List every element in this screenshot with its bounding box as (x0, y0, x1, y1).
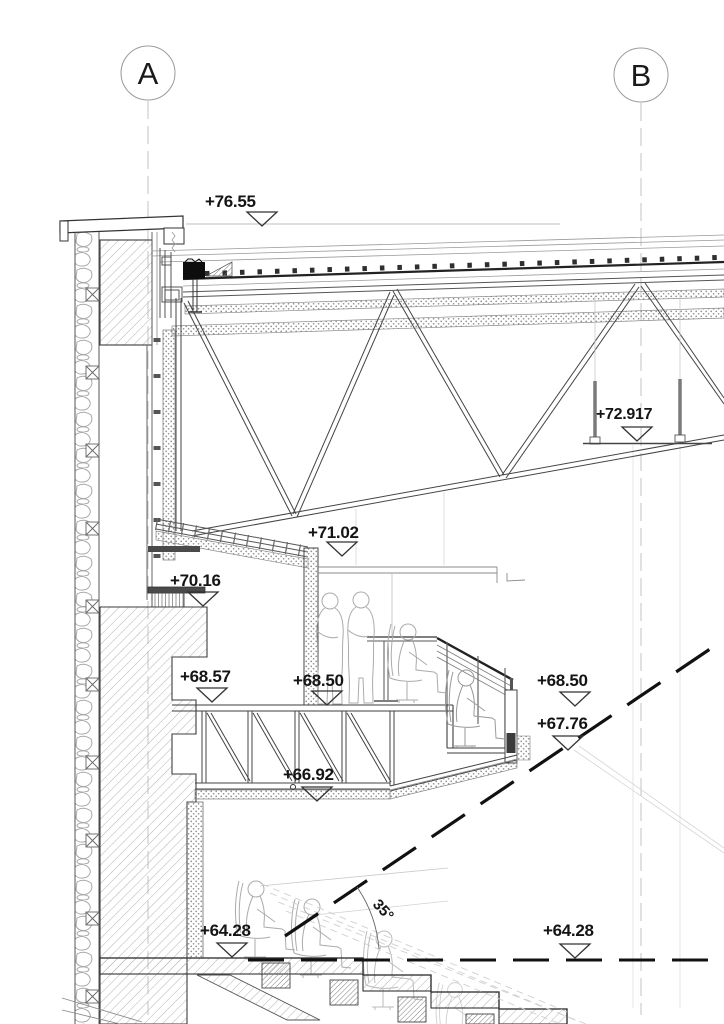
floor-truss (195, 711, 517, 799)
roof-edge-left (160, 248, 182, 318)
suite-railing (437, 638, 513, 752)
slab-soffit (197, 975, 320, 1020)
wall-ledge (148, 587, 205, 607)
grid-label-b: B (631, 58, 652, 93)
level-marker-6428-right: +64.28 (543, 921, 594, 958)
level-marker-6850-right: +68.50 (537, 671, 590, 706)
level-value: +64.28 (200, 921, 251, 940)
level-triangle-icon (197, 688, 227, 702)
level-value: +67.76 (537, 714, 588, 733)
level-triangle-icon (327, 542, 357, 556)
suite-spectator (445, 670, 505, 749)
grid-bubble-b: B (614, 48, 668, 102)
bar-seated-person (387, 624, 447, 703)
level-triangle-icon (560, 944, 590, 958)
parapet-concrete (100, 240, 152, 345)
level-value: +76.55 (205, 192, 256, 211)
level-value: +66.92 (283, 765, 334, 784)
section-drawing: A B (0, 0, 724, 1024)
truss-bottom-chord (192, 435, 724, 536)
grid-label-a: A (138, 56, 159, 91)
level-value: +72.917 (596, 406, 653, 423)
suite-people (317, 592, 505, 749)
grid-bubble-a: A (121, 46, 175, 100)
floor-truss-insulation (195, 790, 390, 799)
level-value: +68.57 (180, 667, 231, 686)
drawing-canvas: A B (0, 0, 724, 1024)
level-marker-6857: +68.57 (180, 667, 231, 702)
level-value: +71.02 (308, 523, 359, 542)
level-value: +68.50 (537, 671, 588, 690)
suite-front-beam (505, 690, 530, 763)
level-marker-6776: +67.76 (537, 714, 588, 750)
level-value: +68.50 (293, 671, 344, 690)
level-value: +70.16 (170, 571, 221, 590)
level-marker-7655: +76.55 (205, 192, 277, 226)
level-marker-6428-left: +64.28 (200, 921, 251, 957)
level-triangle-icon (560, 692, 590, 706)
level-triangle-icon (622, 427, 652, 441)
roof-assembly (152, 235, 724, 336)
level-marker-72917: +72.917 (596, 406, 653, 441)
suite-ceiling (318, 492, 525, 637)
level-triangle-icon (553, 736, 583, 750)
level-triangle-icon (188, 592, 218, 606)
level-value: +64.28 (543, 921, 594, 940)
level-triangle-icon (217, 943, 247, 957)
standing-person-2 (348, 592, 374, 703)
exterior-wall (60, 216, 207, 1024)
